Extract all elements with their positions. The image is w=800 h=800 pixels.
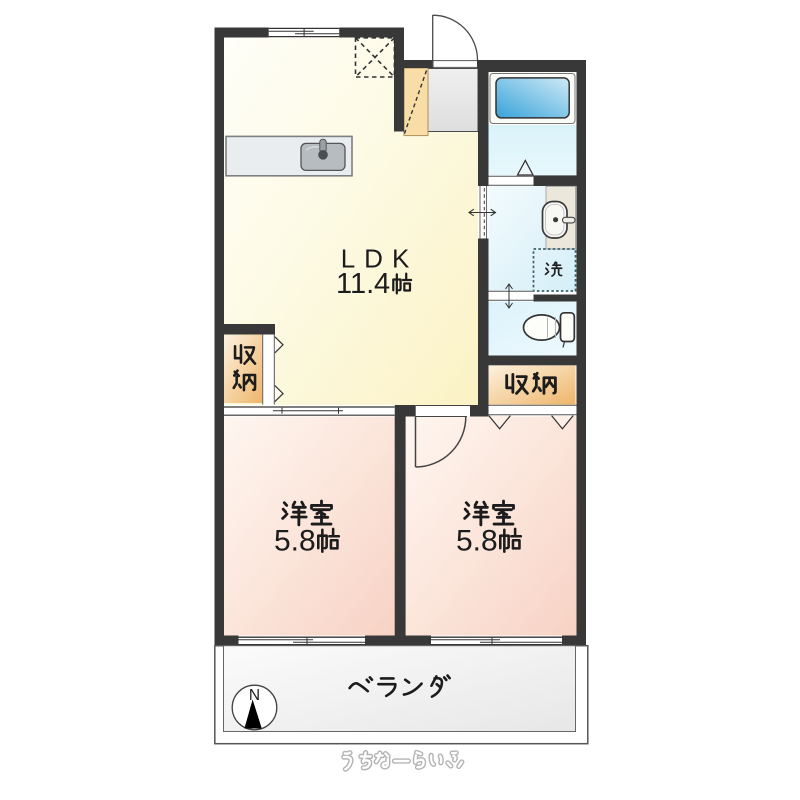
svg-text:5.8: 5.8 (274, 525, 316, 558)
svg-text:N: N (249, 687, 260, 704)
svg-text:11.: 11. (336, 268, 374, 300)
svg-text:4: 4 (374, 268, 390, 300)
svg-text:5.8: 5.8 (456, 525, 498, 558)
